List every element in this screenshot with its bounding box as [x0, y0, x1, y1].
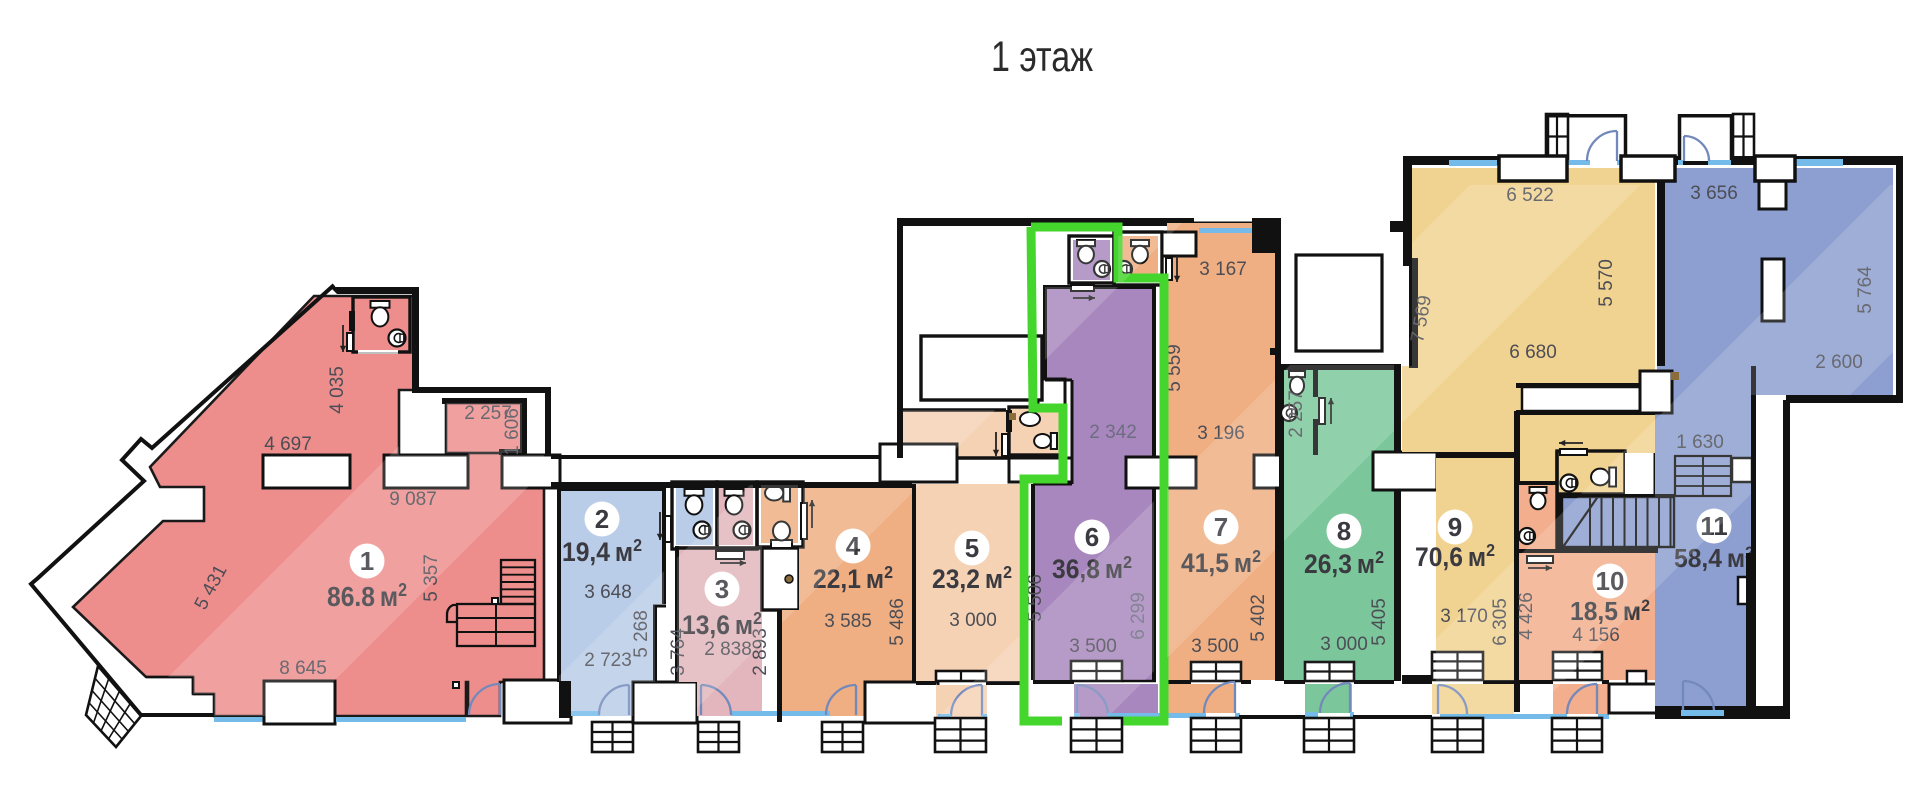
svg-text:3 000: 3 000	[949, 610, 997, 631]
svg-text:6: 6	[1085, 522, 1099, 552]
svg-text:5: 5	[965, 533, 979, 563]
svg-text:8: 8	[1337, 516, 1351, 546]
svg-text:23,2 м2: 23,2 м2	[932, 562, 1012, 594]
svg-text:3 500: 3 500	[1191, 636, 1239, 657]
svg-text:3 167: 3 167	[1199, 259, 1247, 280]
svg-text:5 486: 5 486	[887, 598, 908, 646]
svg-text:3 585: 3 585	[824, 611, 872, 632]
svg-text:5 570: 5 570	[1596, 259, 1617, 307]
svg-text:1 этаж: 1 этаж	[991, 33, 1093, 81]
svg-text:9: 9	[1448, 512, 1462, 542]
svg-text:5 402: 5 402	[1248, 594, 1269, 642]
svg-text:4 697: 4 697	[264, 434, 312, 455]
svg-text:19,4 м2: 19,4 м2	[562, 535, 642, 567]
svg-text:6 680: 6 680	[1509, 342, 1557, 363]
svg-text:4 035: 4 035	[327, 366, 348, 414]
svg-text:2: 2	[595, 504, 609, 534]
svg-text:5 405: 5 405	[1369, 598, 1390, 646]
svg-text:26,3 м2: 26,3 м2	[1304, 547, 1384, 579]
svg-text:70,6 м2: 70,6 м2	[1415, 540, 1495, 572]
svg-text:3 656: 3 656	[1690, 183, 1738, 204]
svg-text:3 000: 3 000	[1320, 634, 1368, 655]
svg-text:3 648: 3 648	[584, 582, 632, 603]
svg-text:2 342: 2 342	[1089, 422, 1137, 443]
